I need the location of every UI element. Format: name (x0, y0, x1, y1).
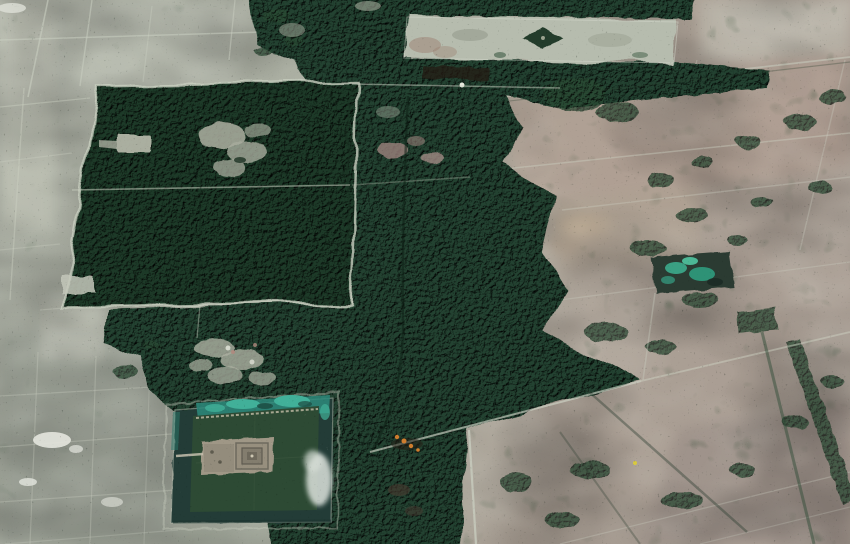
satellite-map[interactable] (0, 0, 850, 544)
satellite-map-canvas[interactable] (0, 0, 850, 544)
grain-light (0, 0, 850, 544)
